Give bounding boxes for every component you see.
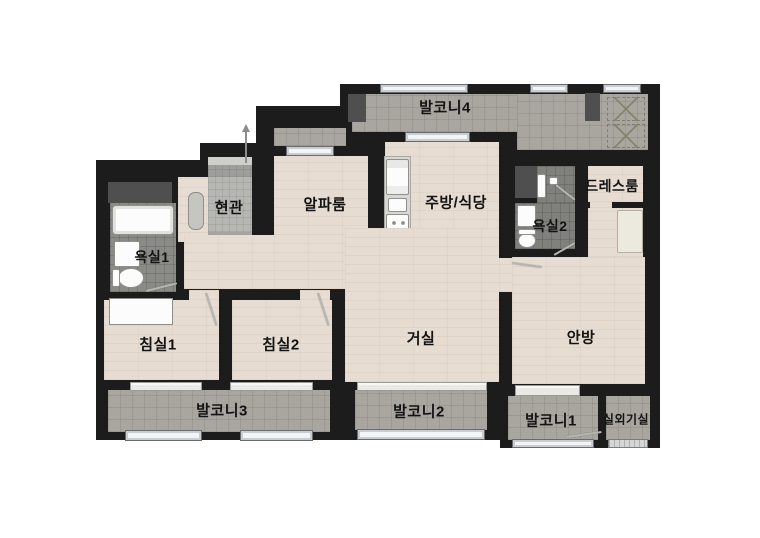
balcony3-label: 발코니3 <box>196 400 248 421</box>
pillar <box>585 93 600 121</box>
dress-room-label: 드레스룸 <box>585 176 639 196</box>
doorway <box>300 290 330 300</box>
ac-unit-room-label: 실외기실 <box>603 411 649 428</box>
bedroom1-label: 침실1 <box>139 334 176 355</box>
doorway <box>189 290 219 300</box>
balcony-door-sill <box>357 382 487 391</box>
window <box>380 84 468 93</box>
master-bedroom-floor <box>512 257 645 384</box>
laundry-unit <box>515 166 537 198</box>
bathroom1-label: 욕실1 <box>134 247 169 267</box>
window <box>512 439 594 448</box>
storage-cabinet <box>108 182 172 203</box>
bathroom1-toilet <box>118 268 144 288</box>
pillar <box>348 94 366 122</box>
balcony2-label: 발코니2 <box>393 401 445 422</box>
fridge <box>386 159 409 195</box>
shaft-hatch-icon <box>607 97 645 121</box>
louver-vent <box>608 439 648 448</box>
kitchen-label: 주방/식당 <box>425 192 487 213</box>
balcony4-label: 발코니4 <box>419 97 471 118</box>
window <box>286 146 334 156</box>
doorway <box>499 258 512 292</box>
living-room-floor <box>345 228 499 382</box>
entry-arrow-icon <box>242 124 250 132</box>
balcony4-floor <box>274 128 346 146</box>
balcony1-label: 발코니1 <box>525 410 577 431</box>
alpha-room-label: 알파룸 <box>304 194 347 215</box>
bathroom2-cabinet <box>537 174 546 198</box>
balcony-door-sill <box>130 382 202 391</box>
entry-arrow-icon <box>245 132 247 163</box>
master-bedroom-label: 안방 <box>567 327 596 348</box>
shaft-hatch-icon <box>607 124 645 148</box>
window <box>357 429 485 440</box>
bathroom1-toilet-tank <box>112 269 120 287</box>
entrance-door-leaf <box>188 192 204 230</box>
balcony-door-sill <box>515 385 580 396</box>
window <box>530 84 568 93</box>
bathtub <box>112 205 174 235</box>
window <box>405 132 470 142</box>
wardrobe <box>109 298 173 325</box>
living-room-label: 거실 <box>407 328 436 349</box>
entrance-label: 현관 <box>215 197 244 218</box>
window <box>603 84 641 93</box>
window <box>240 430 313 441</box>
balcony-door-sill <box>230 382 313 391</box>
kitchen-sink <box>388 198 407 212</box>
closet <box>617 210 643 253</box>
window <box>125 430 202 441</box>
floor-plan: 발코니4 현관 알파룸 주방/식당 거실 욕실1 침실1 침실2 <box>0 0 760 538</box>
bathroom2-label: 욕실2 <box>532 216 567 236</box>
bedroom2-label: 침실2 <box>262 334 299 355</box>
entrance-outer-tile <box>208 165 252 177</box>
